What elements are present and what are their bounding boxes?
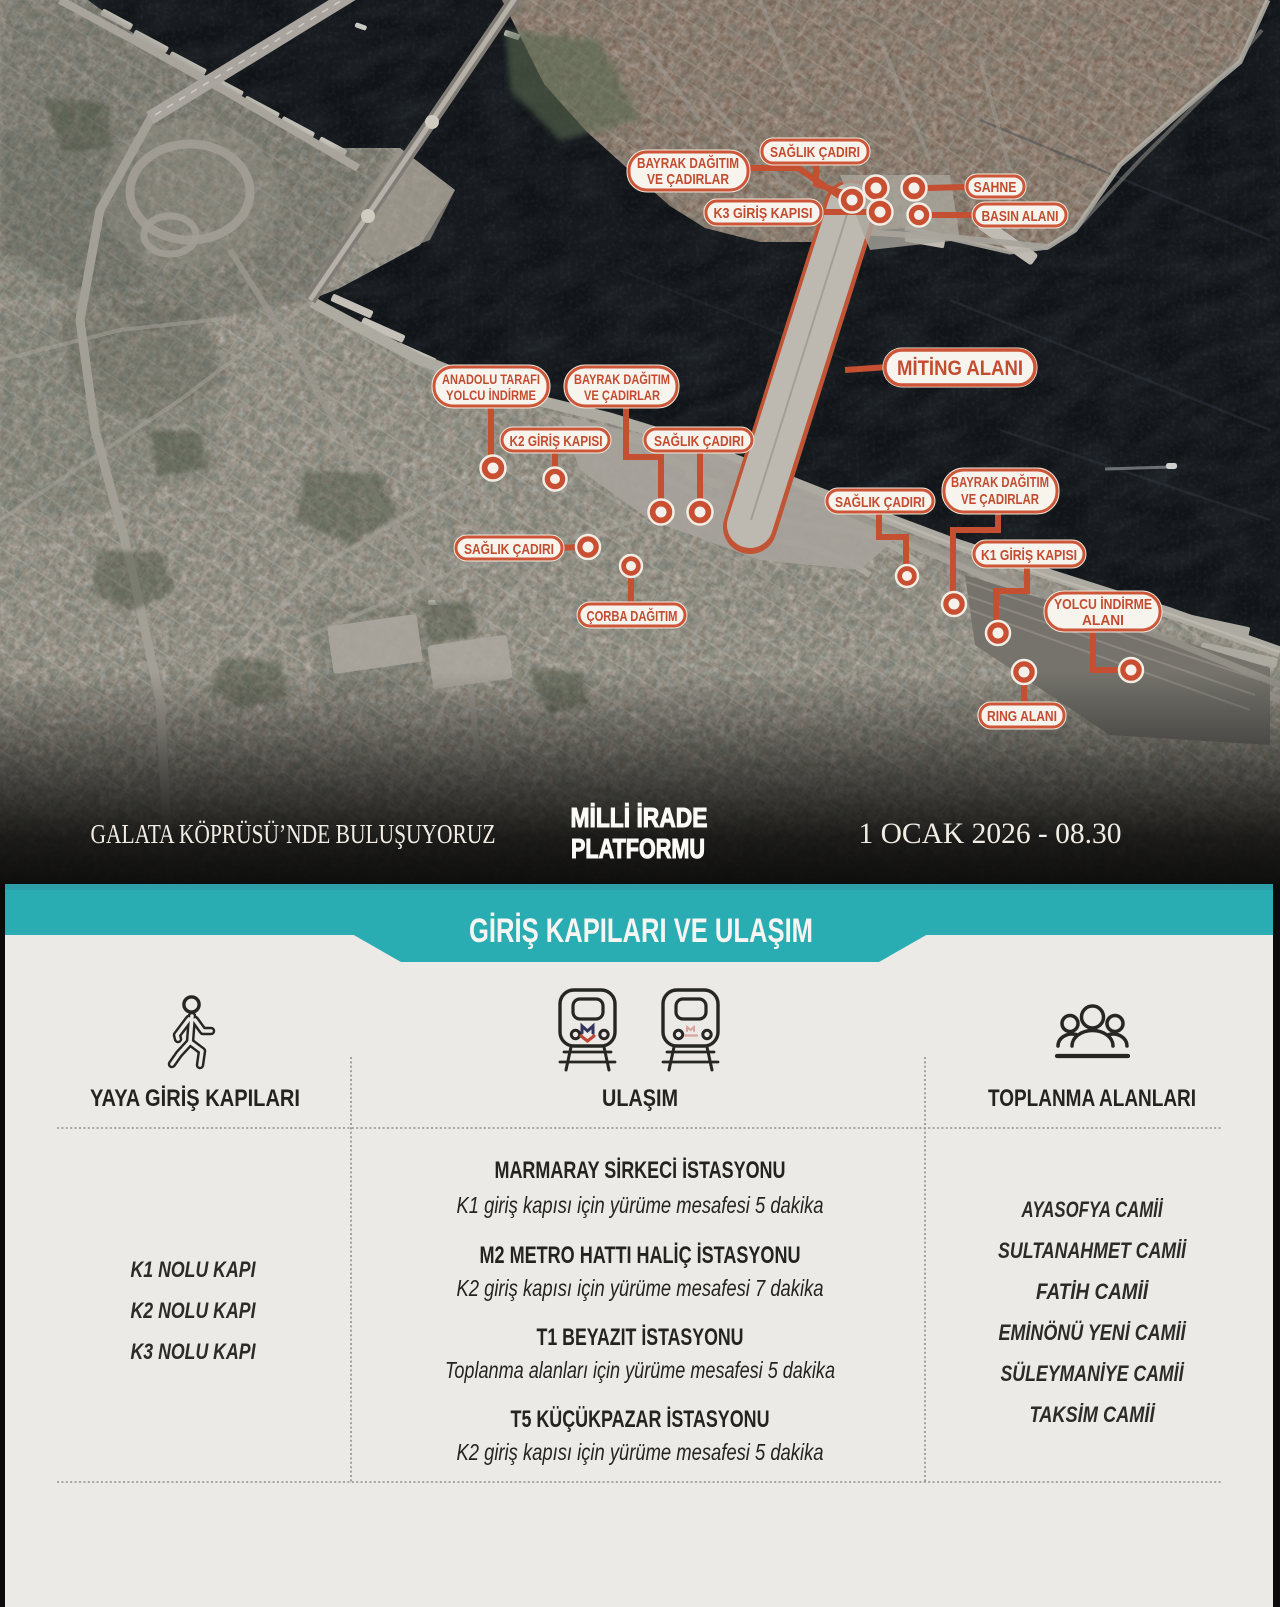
svg-text:K2 giriş kapısı için yürüme me: K2 giriş kapısı için yürüme mesafesi 5 d… [457,1439,824,1465]
svg-text:BAYRAK DAĞITIM: BAYRAK DAĞITIM [637,154,739,172]
svg-text:SÜLEYMANİYE CAMİİ: SÜLEYMANİYE CAMİİ [1001,1361,1186,1386]
svg-text:YOLCU İNDİRME: YOLCU İNDİRME [446,387,536,403]
svg-text:Toplanma alanları için yürüme: Toplanma alanları için yürüme mesafesi 5… [445,1357,835,1383]
svg-text:YAYA GİRİŞ KAPILARI: YAYA GİRİŞ KAPILARI [90,1085,300,1112]
svg-text:K1 giriş kapısı için yürüme m: K1 giriş kapısı için yürüme mesafesi 5 d… [457,1192,824,1218]
svg-text:BASIN ALANI: BASIN ALANI [982,208,1059,225]
svg-text:ULAŞIM: ULAŞIM [602,1085,678,1112]
svg-text:ANADOLU TARAFI: ANADOLU TARAFI [442,371,540,387]
svg-text:VE ÇADIRLAR: VE ÇADIRLAR [584,387,660,403]
svg-text:RING ALANI: RING ALANI [987,708,1057,725]
svg-text:VE ÇADIRLAR: VE ÇADIRLAR [961,491,1039,508]
svg-text:FATİH CAMİİ: FATİH CAMİİ [1036,1279,1150,1304]
svg-text:K3 GİRİŞ KAPISI: K3 GİRİŞ KAPISI [714,205,813,222]
svg-text:SAĞLIK ÇADIRI: SAĞLIK ÇADIRI [464,540,554,558]
svg-text:SAHNE: SAHNE [974,179,1017,196]
svg-text:K2 NOLU KAPI: K2 NOLU KAPI [131,1298,257,1323]
svg-text:BAYRAK DAĞITIM: BAYRAK DAĞITIM [951,473,1049,491]
svg-text:K3 NOLU KAPI: K3 NOLU KAPI [131,1339,257,1364]
svg-text:GİRİŞ KAPILARI VE ULAŞIM: GİRİŞ KAPILARI VE ULAŞIM [469,912,813,950]
svg-text:ALANI: ALANI [1082,612,1124,629]
svg-text:1 OCAK 2026 - 08.30: 1 OCAK 2026 - 08.30 [859,817,1122,850]
svg-text:SAĞLIK ÇADIRI: SAĞLIK ÇADIRI [770,143,860,161]
svg-text:T1 BEYAZIT İSTASYONU: T1 BEYAZIT İSTASYONU [537,1324,744,1351]
svg-text:MİLLİ İRADE: MİLLİ İRADE [571,802,708,833]
svg-text:K1 NOLU KAPI: K1 NOLU KAPI [131,1257,257,1282]
svg-text:TOPLANMA ALANLARI: TOPLANMA ALANLARI [988,1085,1196,1112]
svg-text:ÇORBA DAĞITIM: ÇORBA DAĞITIM [587,607,678,625]
svg-text:PLATFORMU: PLATFORMU [571,833,705,864]
svg-text:MİTİNG ALANI: MİTİNG ALANI [897,357,1023,380]
svg-text:M2 METRO HATTI HALİÇ İSTASYONU: M2 METRO HATTI HALİÇ İSTASYONU [480,1242,801,1269]
svg-text:SULTANAHMET CAMİİ: SULTANAHMET CAMİİ [998,1238,1188,1263]
svg-text:SAĞLIK ÇADIRI: SAĞLIK ÇADIRI [654,432,744,450]
svg-text:VE ÇADIRLAR: VE ÇADIRLAR [647,171,729,188]
svg-text:EMİNÖNÜ YENİ CAMİİ: EMİNÖNÜ YENİ CAMİİ [999,1320,1188,1345]
svg-text:K2 giriş kapısı için yürüme me: K2 giriş kapısı için yürüme mesafesi 7 d… [457,1275,824,1301]
svg-text:TAKSİM CAMİİ: TAKSİM CAMİİ [1030,1402,1157,1427]
svg-text:AYASOFYA CAMİİ: AYASOFYA CAMİİ [1021,1197,1164,1222]
svg-text:BAYRAK DAĞITIM: BAYRAK DAĞITIM [574,370,670,387]
svg-text:K1 GİRİŞ KAPISI: K1 GİRİŞ KAPISI [981,547,1077,564]
svg-text:T5 KÜÇÜKPAZAR İSTASYONU: T5 KÜÇÜKPAZAR İSTASYONU [511,1406,770,1433]
svg-text:K2 GİRİŞ KAPISI: K2 GİRİŞ KAPISI [510,433,603,450]
svg-text:MARMARAY SİRKECİ İSTASYONU: MARMARAY SİRKECİ İSTASYONU [495,1157,786,1184]
svg-text:SAĞLIK ÇADIRI: SAĞLIK ÇADIRI [835,493,925,511]
svg-text:YOLCU İNDİRME: YOLCU İNDİRME [1054,596,1152,613]
svg-text:GALATA KÖPRÜSÜ’NDE BULUŞUYORU: GALATA KÖPRÜSÜ’NDE BULUŞUYORUZ [91,819,496,849]
